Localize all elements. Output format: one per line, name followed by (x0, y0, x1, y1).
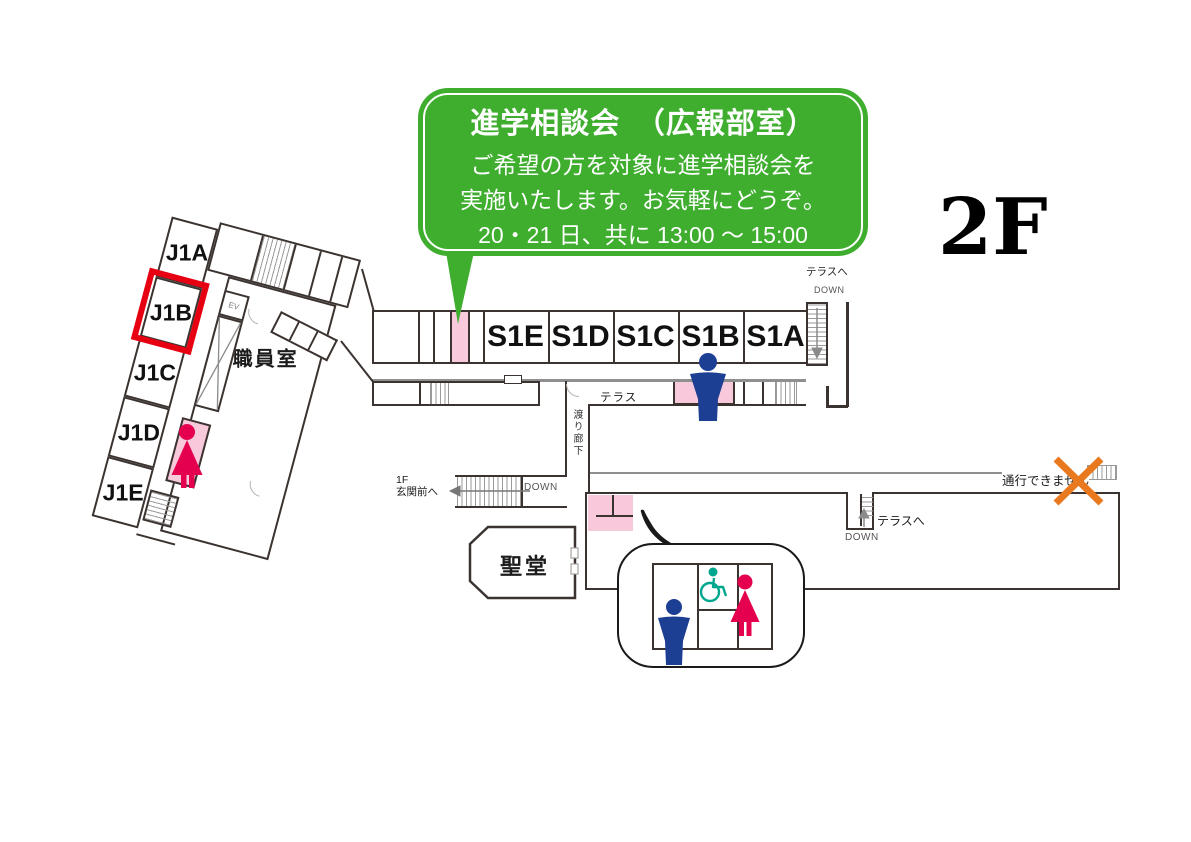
womens-toilet-icon (166, 423, 210, 491)
callout-line3: 20・21 日、共に 13:00 ～ 15:00 (418, 218, 868, 253)
callout-body: ご希望の方を対象に進学相談会を 実施いたします。お気軽にどうぞ。 20・21 日… (418, 148, 868, 253)
callout-line2: 実施いたします。お気軽にどうぞ。 (418, 183, 868, 218)
mens-toilet-icon (656, 598, 692, 668)
floor-map-2f: 進学相談会 （広報部室） ご希望の方を対象に進学相談会を 実施いたします。お気軽… (0, 0, 1191, 842)
womens-toilet-icon (726, 574, 764, 640)
mens-toilet-icon (686, 352, 730, 422)
callout-title: 進学相談会 （広報部室） (418, 100, 868, 142)
callout-line1: ご希望の方を対象に進学相談会を (418, 148, 868, 183)
event-callout: 進学相談会 （広報部室） ご希望の方を対象に進学相談会を 実施いたします。お気軽… (418, 88, 868, 256)
